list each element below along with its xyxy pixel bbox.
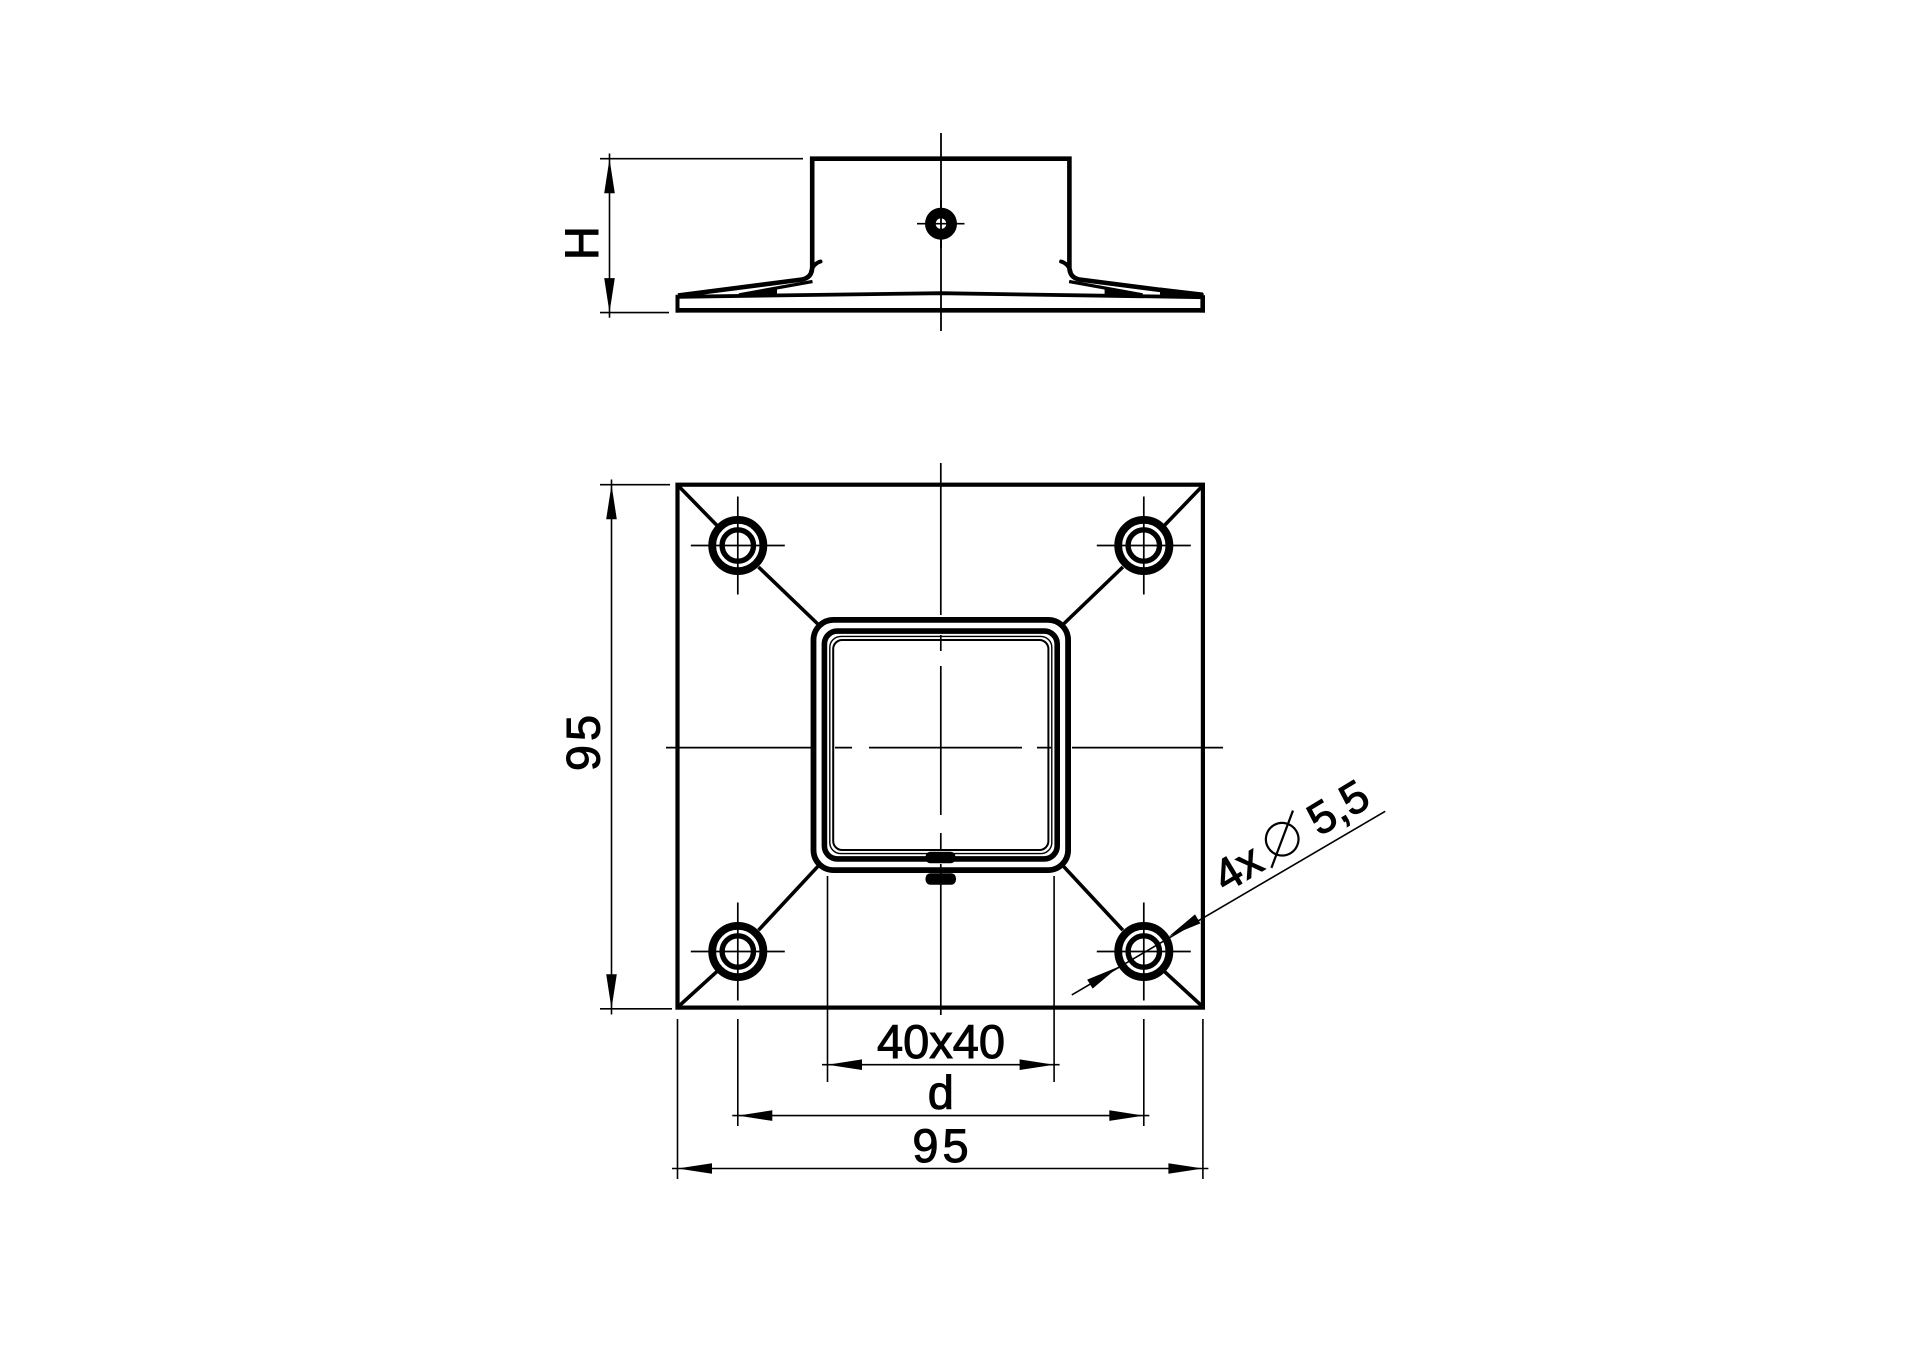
svg-text:40x40: 40x40 <box>877 1015 1005 1068</box>
svg-text:95: 95 <box>912 1119 972 1172</box>
svg-text:95: 95 <box>557 711 610 771</box>
svg-text:H: H <box>555 226 608 260</box>
svg-text:d: d <box>928 1066 954 1119</box>
